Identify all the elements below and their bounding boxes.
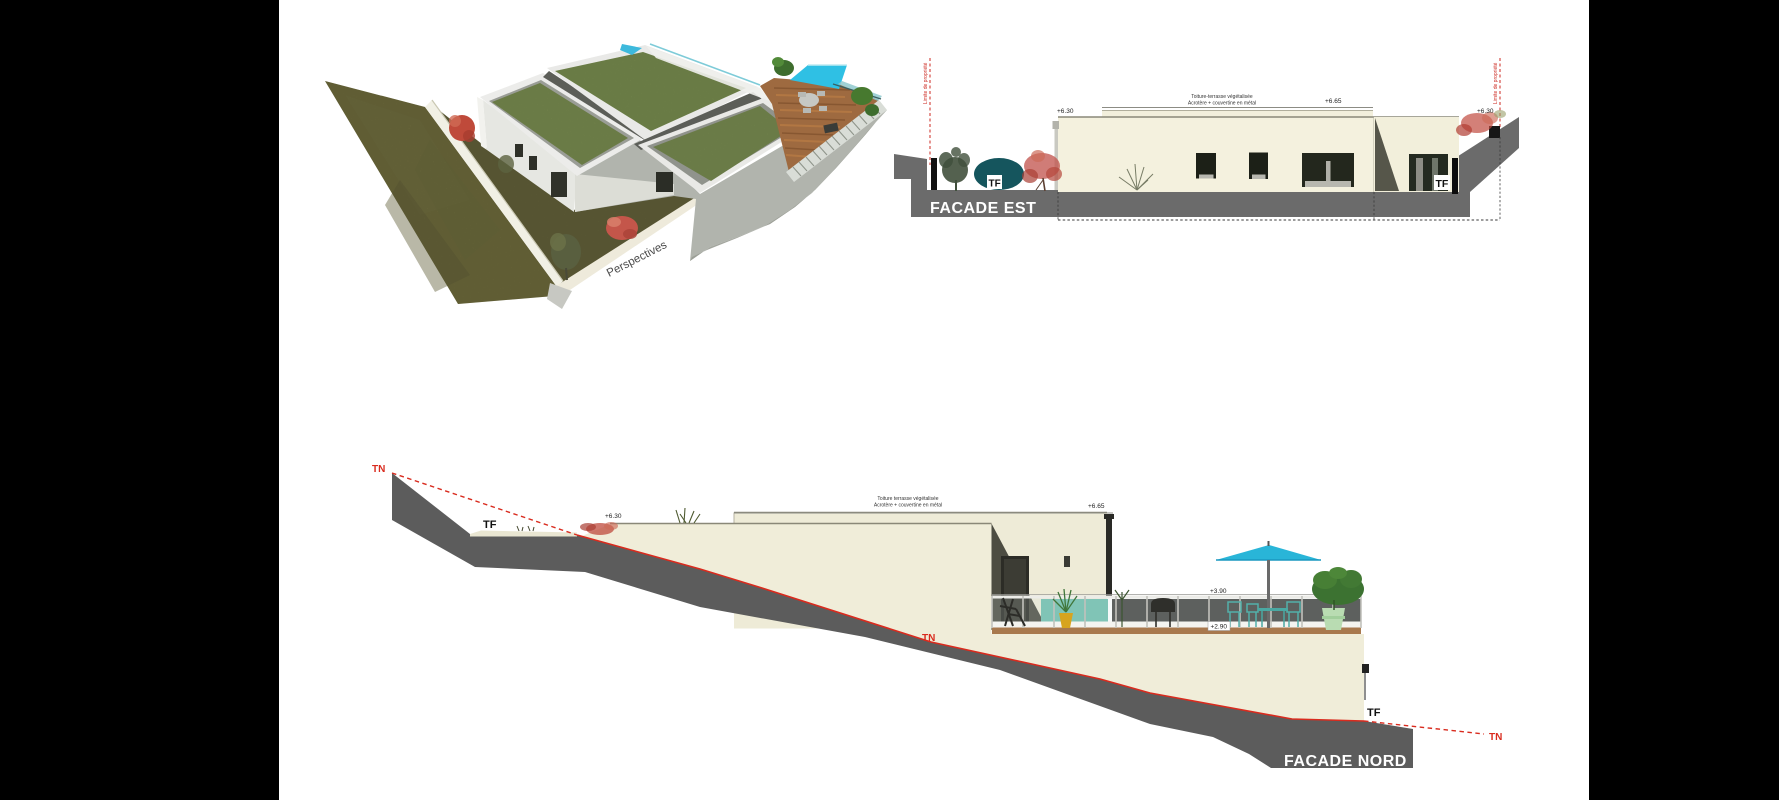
svg-text:TN: TN <box>922 633 935 644</box>
svg-text:Acrotère + couvertine en métal: Acrotère + couvertine en métal <box>874 503 942 509</box>
svg-text:+6.30: +6.30 <box>605 513 622 520</box>
svg-text:+3.90: +3.90 <box>1210 588 1227 595</box>
svg-text:TF: TF <box>1367 707 1381 719</box>
svg-text:Toiture terrasse végétalisée: Toiture terrasse végétalisée <box>877 496 938 502</box>
svg-text:TN: TN <box>1489 732 1502 743</box>
svg-text:TF: TF <box>989 179 1001 190</box>
svg-text:+6.30: +6.30 <box>1477 108 1494 115</box>
svg-text:+6.65: +6.65 <box>1325 98 1342 105</box>
svg-text:FACADE EST: FACADE EST <box>930 200 1036 217</box>
svg-text:+6.30: +6.30 <box>1057 108 1074 115</box>
svg-text:FACADE NORD: FACADE NORD <box>1284 753 1407 770</box>
svg-text:+6.65: +6.65 <box>1088 503 1105 510</box>
svg-text:TN: TN <box>372 464 385 475</box>
svg-text:Limite de propriété: Limite de propriété <box>923 62 929 104</box>
svg-text:Toiture-terrasse végétalisée: Toiture-terrasse végétalisée <box>1191 94 1253 100</box>
svg-text:Acrotère + couvertine en métal: Acrotère + couvertine en métal <box>1188 101 1256 107</box>
svg-text:+2.90: +2.90 <box>1211 624 1228 631</box>
svg-text:Limite de propriété: Limite de propriété <box>1493 62 1499 104</box>
svg-text:TF: TF <box>483 519 497 531</box>
svg-text:TF: TF <box>1436 178 1449 190</box>
